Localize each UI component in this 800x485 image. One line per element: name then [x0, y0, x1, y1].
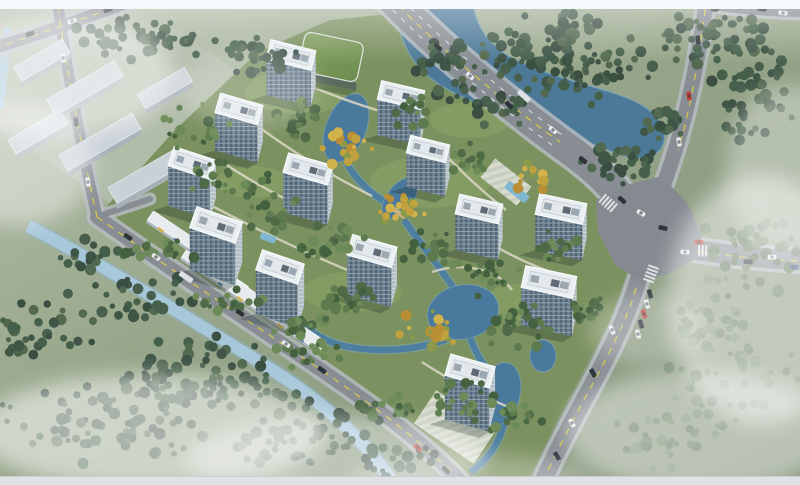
tree	[476, 269, 481, 274]
tree	[480, 166, 487, 173]
tree	[123, 305, 130, 312]
tree	[544, 326, 553, 335]
tree	[189, 252, 200, 263]
tree	[96, 306, 107, 317]
tree	[157, 303, 169, 315]
tree	[201, 139, 206, 144]
tree	[470, 85, 477, 92]
tree	[133, 283, 144, 294]
tree	[382, 212, 390, 220]
tree	[451, 79, 459, 87]
tree	[145, 354, 156, 365]
tree	[531, 76, 538, 83]
top-band	[0, 0, 800, 9]
tree	[562, 78, 568, 84]
tree	[289, 327, 297, 335]
tree	[315, 253, 321, 259]
tree	[5, 348, 14, 357]
tree	[739, 71, 749, 81]
tree	[614, 164, 624, 174]
tree	[79, 234, 90, 245]
tree	[175, 125, 186, 136]
tree	[401, 310, 412, 321]
tree	[467, 141, 473, 147]
tree	[521, 402, 528, 409]
tree	[643, 118, 652, 127]
tree	[208, 342, 217, 351]
tree	[446, 405, 452, 411]
tree	[491, 316, 502, 327]
tree	[110, 303, 115, 308]
tree	[121, 248, 132, 259]
tree	[199, 178, 209, 188]
tree	[103, 292, 109, 298]
tree	[443, 388, 448, 393]
tree	[28, 350, 38, 360]
tree	[267, 211, 274, 218]
tree	[361, 234, 368, 241]
tree	[328, 226, 333, 231]
tree	[258, 177, 266, 185]
tree	[209, 171, 218, 180]
tree	[190, 186, 196, 192]
tree	[425, 244, 430, 249]
tree	[237, 359, 247, 369]
tree	[477, 262, 483, 268]
top-haze	[0, 9, 800, 64]
tree	[401, 202, 409, 210]
tree	[287, 318, 296, 327]
tree	[410, 409, 415, 414]
tree	[212, 332, 222, 342]
tree	[209, 128, 218, 137]
tree	[293, 133, 299, 139]
tree	[260, 200, 270, 210]
tree	[167, 132, 172, 137]
tree	[469, 155, 476, 162]
tree	[486, 326, 496, 336]
tree	[459, 75, 467, 83]
tree	[445, 379, 456, 390]
tree	[427, 341, 438, 352]
tree	[480, 120, 489, 129]
tree	[73, 337, 82, 346]
tree	[271, 329, 277, 335]
tree	[216, 349, 227, 360]
tree	[46, 334, 52, 340]
tree	[524, 86, 532, 94]
tree	[519, 173, 524, 178]
tree	[626, 65, 633, 72]
tower	[283, 153, 333, 225]
tree	[92, 282, 99, 289]
tree	[459, 161, 466, 168]
tree	[427, 251, 438, 262]
tree	[272, 344, 282, 354]
tree	[149, 278, 157, 286]
tree	[415, 110, 420, 115]
tree	[49, 317, 59, 327]
tree	[477, 160, 481, 164]
tree	[357, 301, 363, 307]
tree	[308, 236, 319, 247]
tree	[263, 372, 269, 378]
tree	[476, 151, 484, 159]
tree	[331, 285, 338, 292]
tree	[290, 200, 296, 206]
tree	[467, 401, 473, 407]
tree	[334, 239, 338, 243]
tree	[149, 308, 155, 314]
tree	[420, 68, 428, 76]
tree	[496, 259, 504, 267]
tree	[176, 105, 182, 111]
tree	[205, 352, 210, 357]
tree	[656, 135, 662, 141]
tree	[531, 342, 541, 352]
tree	[454, 259, 462, 267]
tree	[170, 290, 176, 296]
tree	[461, 378, 471, 388]
tree	[208, 304, 213, 309]
tree	[311, 113, 320, 122]
tree	[472, 64, 478, 70]
tree	[177, 367, 183, 373]
tree	[76, 262, 86, 272]
tower	[455, 194, 502, 259]
tree	[262, 377, 269, 384]
tree	[243, 192, 251, 200]
tree	[600, 171, 607, 178]
tree	[154, 337, 164, 347]
tree	[114, 311, 123, 320]
tree	[538, 185, 548, 195]
tree	[296, 331, 306, 341]
tree	[431, 309, 435, 313]
tree	[6, 337, 11, 342]
tree	[326, 241, 333, 248]
tree	[479, 276, 485, 282]
tree	[583, 70, 589, 76]
tree	[175, 145, 180, 150]
tree	[641, 161, 647, 167]
tree	[417, 254, 426, 263]
tree	[588, 101, 596, 109]
tree	[239, 372, 250, 383]
tree	[603, 78, 610, 85]
tree	[554, 246, 559, 251]
tree	[678, 131, 684, 137]
tree	[342, 305, 350, 313]
tree	[655, 121, 666, 132]
tree	[13, 340, 24, 351]
tree	[384, 193, 390, 199]
tree	[323, 347, 328, 352]
tree	[499, 409, 505, 415]
tree	[343, 244, 353, 254]
tree	[378, 210, 383, 215]
tree	[79, 309, 88, 318]
tree	[457, 149, 465, 157]
tree	[370, 147, 375, 152]
tree	[288, 364, 295, 371]
tree	[251, 343, 258, 350]
tree	[29, 305, 39, 315]
tree	[490, 268, 495, 273]
tree	[70, 248, 79, 257]
tree	[495, 281, 499, 285]
tree	[247, 223, 256, 232]
tree	[598, 296, 603, 301]
tree	[320, 247, 331, 258]
tree	[559, 83, 564, 88]
tree	[620, 181, 625, 186]
tree	[214, 158, 223, 167]
tree	[255, 361, 266, 372]
tree	[475, 293, 482, 300]
tree	[523, 418, 529, 424]
tree	[472, 409, 479, 416]
tree	[60, 308, 66, 314]
tree	[550, 67, 560, 77]
tree	[308, 323, 313, 328]
tree	[512, 422, 519, 429]
tree	[446, 96, 454, 104]
tree	[394, 121, 402, 129]
tree	[305, 396, 315, 406]
tree	[141, 313, 149, 321]
tree	[185, 343, 193, 351]
tree	[449, 398, 455, 404]
tree	[362, 139, 366, 143]
tree	[500, 63, 511, 74]
tree	[649, 149, 656, 156]
tree	[574, 82, 580, 88]
tree	[335, 243, 344, 252]
tree	[444, 232, 449, 237]
aerial-scene	[0, 0, 800, 485]
tree	[202, 357, 210, 365]
tree	[358, 288, 366, 296]
tree	[717, 70, 728, 81]
tree	[566, 64, 573, 71]
car-windshield	[661, 226, 665, 230]
tree	[487, 398, 497, 408]
tree	[531, 303, 537, 309]
tree	[546, 229, 551, 234]
tree	[472, 164, 476, 168]
tree	[396, 403, 403, 410]
tower	[445, 354, 495, 432]
tree	[352, 306, 359, 313]
tree	[136, 252, 146, 262]
tree	[459, 410, 465, 416]
tree	[444, 247, 449, 252]
tree	[616, 66, 624, 74]
tree	[408, 122, 417, 131]
tree	[478, 380, 485, 387]
tree	[254, 297, 264, 307]
tree	[264, 171, 272, 179]
tree	[385, 203, 394, 212]
tree	[314, 221, 323, 230]
tree	[388, 397, 396, 405]
tree	[336, 137, 343, 144]
tree	[525, 411, 533, 419]
tree	[538, 320, 545, 327]
tree	[562, 72, 568, 78]
tree	[43, 300, 51, 308]
tree	[408, 247, 416, 255]
tree	[37, 338, 47, 348]
tree	[175, 297, 184, 306]
tree	[639, 167, 651, 179]
tree	[0, 317, 6, 323]
tree	[246, 212, 253, 219]
tree	[463, 97, 470, 104]
tree	[418, 94, 426, 102]
tree	[546, 257, 551, 262]
tree	[301, 245, 306, 250]
tree	[249, 205, 254, 210]
tree	[482, 69, 488, 75]
tree	[436, 400, 446, 410]
tree	[611, 157, 617, 163]
tree	[28, 334, 35, 341]
tree	[58, 255, 64, 261]
tree	[327, 159, 338, 170]
tree	[488, 340, 494, 346]
tree	[478, 389, 483, 394]
tree	[22, 336, 29, 343]
tree	[434, 314, 444, 324]
tree	[400, 195, 408, 203]
tree	[372, 401, 379, 408]
tree	[529, 173, 535, 179]
tree	[315, 343, 319, 347]
tree	[406, 97, 414, 105]
aerial-rendering: Bird's-eye architectural rendering of a …	[0, 0, 800, 485]
tree	[352, 137, 357, 142]
tree	[233, 285, 241, 293]
tree	[333, 127, 343, 137]
tree	[211, 366, 221, 376]
tree	[461, 86, 469, 94]
tree	[167, 117, 173, 123]
tree	[352, 145, 356, 149]
tree	[506, 401, 517, 412]
tree	[321, 299, 332, 310]
tree	[322, 316, 329, 323]
tree	[305, 253, 311, 259]
tree	[128, 311, 139, 322]
tree	[547, 77, 555, 85]
tree	[396, 330, 404, 338]
tree	[410, 200, 418, 208]
tree	[570, 74, 576, 80]
tree	[586, 306, 593, 313]
tree	[500, 279, 506, 285]
tree	[587, 163, 596, 172]
tree	[378, 401, 385, 408]
tree	[418, 118, 429, 129]
tree	[421, 107, 430, 116]
tree	[529, 166, 536, 173]
tree	[728, 99, 737, 108]
tree	[487, 279, 494, 286]
tree	[202, 304, 206, 308]
tree	[445, 320, 450, 325]
tree	[290, 349, 299, 358]
tree	[344, 294, 352, 302]
tree	[470, 273, 475, 278]
tree	[173, 134, 178, 139]
tree	[104, 251, 110, 257]
tree	[491, 422, 501, 432]
tree	[431, 332, 442, 343]
tree	[581, 82, 587, 88]
tree	[291, 389, 301, 399]
mist-patch	[588, 294, 708, 366]
tree	[505, 312, 513, 320]
car-windshield	[677, 140, 681, 144]
tree	[195, 169, 203, 177]
tree	[303, 358, 310, 365]
tower	[406, 135, 449, 196]
tree	[168, 252, 173, 257]
tree	[422, 212, 427, 217]
tree	[592, 76, 602, 86]
tree	[66, 341, 74, 349]
tree	[336, 354, 344, 362]
tree	[90, 241, 97, 248]
tree	[440, 259, 448, 267]
tree	[168, 241, 173, 246]
tree	[88, 339, 95, 346]
tree	[630, 173, 636, 179]
tree	[417, 228, 424, 235]
tree	[64, 259, 73, 268]
tree	[571, 235, 582, 246]
tree	[133, 298, 140, 305]
tree	[503, 418, 510, 425]
tree	[454, 94, 459, 99]
tree	[34, 318, 43, 327]
tree	[241, 180, 249, 188]
tree	[270, 192, 278, 200]
tree	[522, 166, 527, 171]
tree	[192, 293, 199, 300]
tree	[411, 335, 415, 339]
tree	[172, 255, 176, 259]
tree	[277, 211, 287, 221]
tree	[437, 239, 445, 247]
tree	[450, 339, 456, 345]
tree	[223, 189, 228, 194]
car-windshield	[687, 94, 691, 98]
tree	[245, 298, 253, 306]
tree	[516, 121, 522, 127]
tree	[86, 253, 94, 261]
tree	[228, 362, 236, 370]
tree	[310, 359, 315, 364]
tree	[428, 330, 432, 334]
tree	[516, 266, 523, 273]
tree	[464, 264, 472, 272]
tree	[514, 74, 522, 82]
tree	[370, 294, 377, 301]
tree	[319, 145, 325, 151]
